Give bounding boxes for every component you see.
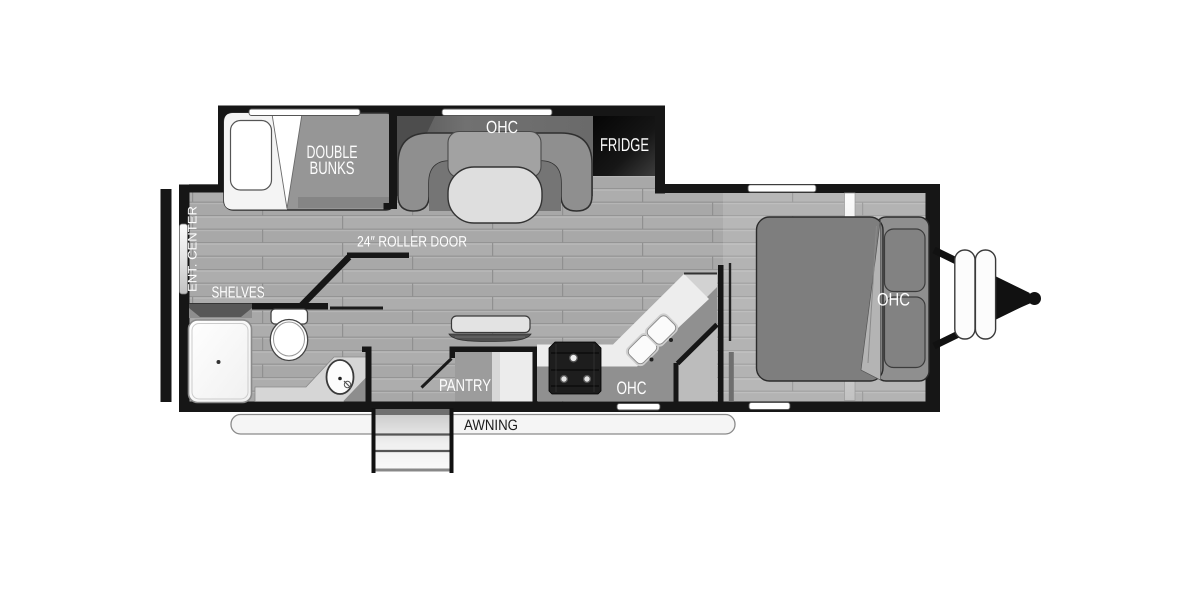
svg-text:OHC: OHC xyxy=(486,117,518,137)
svg-text:AWNING: AWNING xyxy=(464,417,518,434)
svg-text:OHC: OHC xyxy=(877,290,910,310)
svg-text:24″ ROLLER DOOR: 24″ ROLLER DOOR xyxy=(357,234,467,251)
svg-text:BUNKS: BUNKS xyxy=(310,158,355,178)
svg-text:ENT. CENTER: ENT. CENTER xyxy=(186,206,200,292)
svg-text:FRIDGE: FRIDGE xyxy=(600,134,649,155)
svg-text:SHELVES: SHELVES xyxy=(212,285,265,302)
svg-text:OHC: OHC xyxy=(617,378,647,398)
svg-text:PANTRY: PANTRY xyxy=(439,376,491,395)
